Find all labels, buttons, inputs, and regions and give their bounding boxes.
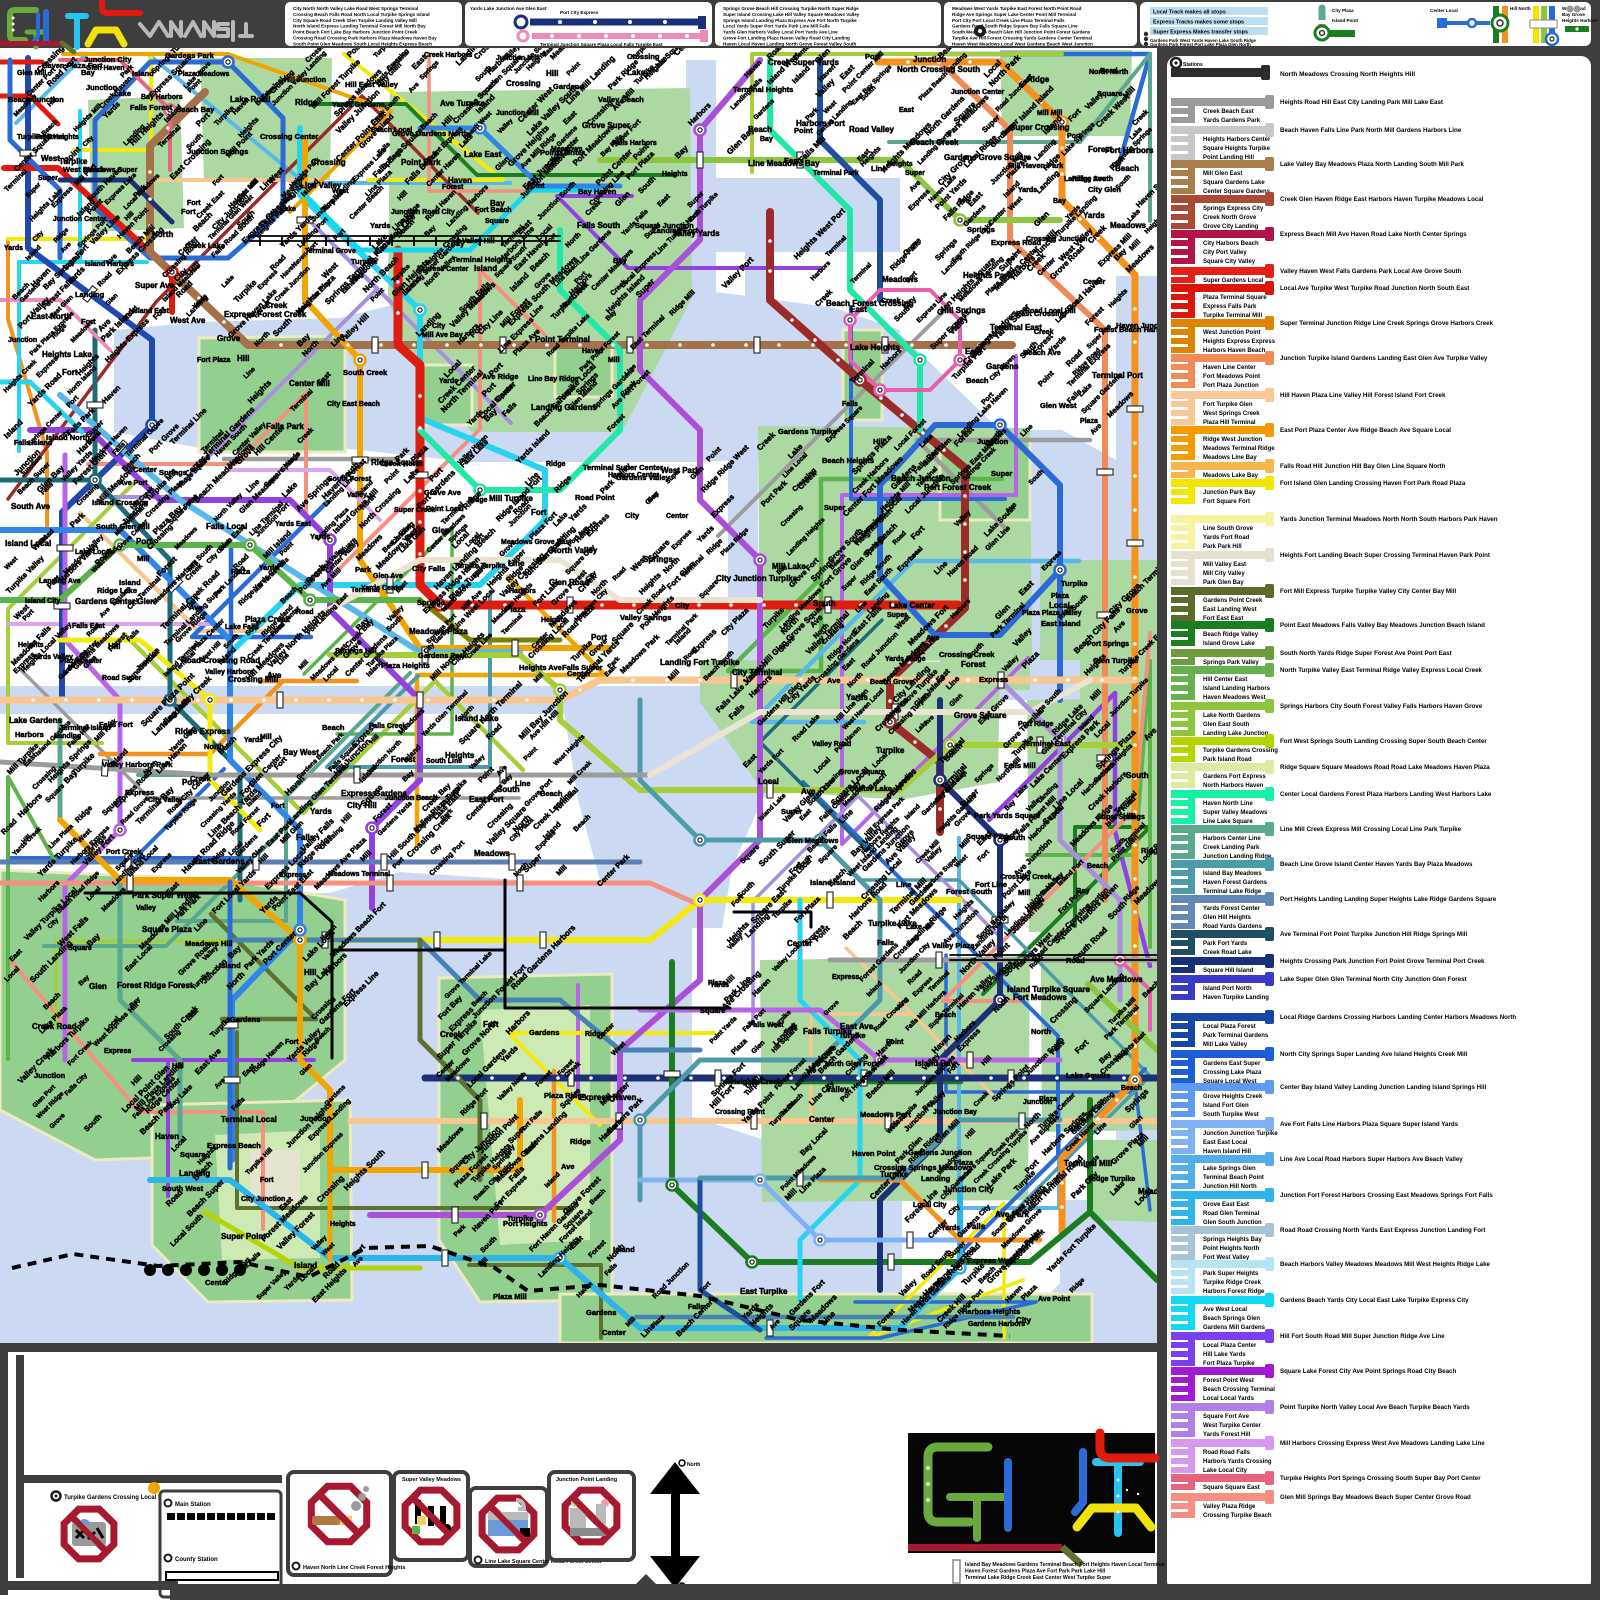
svg-text:Point East Meadows Falls Valle: Point East Meadows Falls Valley Bay Mead… — [1280, 622, 1485, 629]
svg-text:Beach Junction: Beach Junction — [8, 95, 64, 104]
svg-text:Beach Forest Crossing: Beach Forest Crossing — [826, 299, 914, 308]
svg-text:Road Road Crossing North Yards: Road Road Crossing North Yards East Expr… — [1280, 1227, 1485, 1234]
svg-text:Park Terminal Gardens: Park Terminal Gardens — [1203, 1033, 1269, 1039]
svg-text:Ave Terminal Fort Point Turpik: Ave Terminal Fort Point Turpike Junction… — [1280, 931, 1468, 938]
svg-text:Fort: Fort — [181, 207, 196, 216]
svg-text:Fort Turpike Glen: Fort Turpike Glen — [1203, 402, 1253, 408]
svg-text:Stations: Stations — [1183, 62, 1203, 68]
svg-text:Mill: Mill — [1018, 888, 1031, 897]
svg-text:Island City: Island City — [25, 598, 61, 605]
svg-text:Express Center: Express Center — [417, 266, 469, 273]
svg-text:South Creek: South Creek — [343, 368, 388, 377]
svg-text:Yards Gardens Park: Yards Gardens Park — [1203, 118, 1261, 124]
svg-text:Terminal Super Center: Terminal Super Center — [583, 463, 663, 472]
svg-text:Yards Ridge: Yards Ridge — [885, 656, 926, 663]
svg-text:Beach Junction: Beach Junction — [891, 474, 951, 483]
svg-text:Island Island: Island Island — [810, 878, 856, 887]
svg-text:Fort Beach: Fort Beach — [475, 207, 512, 214]
svg-text:Yards Gardens: Yards Gardens — [332, 100, 385, 109]
svg-text:Super Island Crossing Lake Hil: Super Island Crossing Lake Hill Valley S… — [723, 12, 860, 17]
svg-text:Junction Mill: Junction Mill — [496, 110, 539, 117]
svg-text:Yards: Yards — [310, 807, 332, 816]
svg-text:Springs: Springs — [159, 468, 187, 477]
svg-text:Express Beach Mill Ave Haven R: Express Beach Mill Ave Haven Road Lake N… — [1280, 231, 1467, 238]
svg-text:Line South Grove: Line South Grove — [1203, 526, 1254, 532]
svg-text:Junction: Junction — [86, 83, 118, 92]
svg-text:Forest: Forest — [442, 184, 464, 191]
svg-text:Creek: Creek — [190, 774, 212, 783]
svg-text:Meadows Terminal: Meadows Terminal — [328, 871, 390, 878]
svg-text:Super Valley Meadows: Super Valley Meadows — [402, 1477, 461, 1483]
svg-text:Hill: Hill — [546, 69, 558, 78]
svg-text:Hill Springs: Hill Springs — [941, 306, 986, 315]
svg-text:Junction Hill North: Junction Hill North — [1203, 1184, 1257, 1190]
svg-text:Ave Point: Ave Point — [1038, 1296, 1071, 1303]
svg-text:Ridge Turpike: Ridge Turpike — [1089, 1176, 1135, 1183]
svg-text:City: City — [625, 511, 640, 520]
svg-text:Falls Park: Falls Park — [266, 422, 304, 431]
svg-text:Fort: Fort — [62, 368, 78, 377]
svg-text:Falls: Falls — [296, 833, 315, 842]
svg-text:Junction: Junction — [8, 337, 37, 344]
svg-text:Center: Center — [133, 465, 157, 474]
svg-text:Road: Road — [1100, 68, 1118, 75]
svg-text:Island Grove Lake: Island Grove Lake — [1203, 641, 1255, 647]
svg-text:Fort: Fort — [271, 803, 285, 810]
svg-text:Falls South: Falls South — [577, 221, 620, 230]
svg-text:Island East: Island East — [132, 308, 170, 315]
svg-text:Beach Creek: Beach Creek — [910, 138, 959, 147]
svg-text:Junction: Junction — [34, 1071, 66, 1080]
svg-text:Creek Road Lake: Creek Road Lake — [1203, 950, 1252, 956]
svg-text:South: South — [1004, 833, 1026, 842]
svg-text:Beach Springs Glen: Beach Springs Glen — [1203, 1316, 1260, 1322]
svg-text:Meadows: Meadows — [551, 146, 583, 153]
svg-text:Ridge Express: Ridge Express — [175, 727, 231, 736]
svg-text:Harbors: Harbors — [509, 588, 536, 595]
svg-text:Junction Fort Forest Harbors C: Junction Fort Forest Harbors Crossing Ea… — [1280, 1192, 1493, 1199]
svg-text:Grove: Grove — [217, 334, 241, 343]
svg-text:City Port Valley: City Port Valley — [1203, 250, 1247, 256]
svg-text:Springs Harbors City South For: Springs Harbors City South Forest Valley… — [1280, 703, 1483, 710]
svg-text:Express: Express — [125, 788, 154, 797]
svg-text:Turpike Heights Port Springs C: Turpike Heights Port Springs Crossing So… — [1280, 1475, 1481, 1482]
svg-text:Crossing Creek: Crossing Creek — [939, 650, 995, 659]
svg-text:Point Heights North: Point Heights North — [1203, 1246, 1260, 1252]
svg-text:Junction Springs: Junction Springs — [187, 147, 248, 156]
svg-text:Line Bay Ridge: Line Bay Ridge — [528, 376, 579, 383]
svg-text:Meadows: Meadows — [882, 275, 919, 284]
svg-text:Express: Express — [979, 675, 1008, 684]
svg-text:Line: Line — [508, 559, 525, 568]
svg-text:Turpike: Turpike — [351, 257, 378, 266]
svg-text:Fort: Fort — [531, 508, 547, 517]
svg-text:Haven: Haven — [582, 348, 603, 355]
svg-text:Yards: Yards — [439, 378, 458, 385]
svg-text:Lake Road: Lake Road — [230, 95, 271, 104]
svg-text:Creek Harbors: Creek Harbors — [424, 52, 472, 59]
svg-text:Landing: Landing — [179, 1169, 210, 1178]
svg-text:South Glen Hill: South Glen Hill — [96, 522, 150, 531]
svg-text:Heights Road Hill East City La: Heights Road Hill East City Landing Park… — [1280, 99, 1443, 106]
svg-text:Harbors Heights: Harbors Heights — [962, 1307, 1020, 1316]
svg-text:Beach Bay: Beach Bay — [176, 105, 215, 114]
svg-text:Mill Ave Bay: Mill Ave Bay — [422, 332, 463, 339]
svg-text:Fort Square Fort: Fort Square Fort — [1203, 499, 1250, 505]
svg-text:Ave Ridge: Ave Ridge — [482, 372, 518, 381]
svg-text:Haven North Line Creek Forest: Haven North Line Creek Forest Heights — [303, 1565, 405, 1571]
svg-text:Mill: Mill — [608, 357, 620, 364]
svg-text:Creek Beach East: Creek Beach East — [1203, 109, 1254, 115]
svg-text:Heights: Heights — [330, 1221, 356, 1228]
svg-text:Port City Port Local Creek Lin: Port City Port Local Creek Line Plaza Te… — [952, 18, 1065, 23]
svg-text:Terminal Heights: Terminal Heights — [733, 85, 793, 94]
svg-text:Meadows Grove East: Meadows Grove East — [501, 539, 572, 546]
svg-text:Terminal Local: Terminal Local — [221, 1115, 277, 1124]
svg-text:Valley Yards: Valley Yards — [673, 229, 720, 238]
svg-text:Fort: Fort — [260, 1177, 274, 1184]
svg-text:Bay Harbors: Bay Harbors — [141, 94, 183, 101]
svg-text:County Station: County Station — [175, 1557, 218, 1563]
svg-text:Lake Falls: Lake Falls — [225, 624, 259, 631]
svg-text:Park Glen Bay: Park Glen Bay — [1203, 580, 1244, 586]
svg-text:Beach: Beach — [748, 125, 772, 134]
svg-text:Gardens Center Glen: Gardens Center Glen — [75, 597, 155, 606]
svg-text:Yards: Yards — [370, 221, 390, 230]
svg-text:Springs Park Valley: Springs Park Valley — [1203, 660, 1259, 666]
svg-text:Harbors Center: Harbors Center — [608, 472, 659, 479]
svg-text:Springs Island Landing Plaza E: Springs Island Landing Plaza Express Ave… — [723, 18, 857, 23]
svg-text:Point Terminal: Point Terminal — [535, 335, 590, 344]
svg-text:Falls: Falls — [967, 1222, 986, 1231]
svg-text:Yards: Yards — [846, 693, 868, 702]
svg-text:Square Fort Ave: Square Fort Ave — [1203, 1414, 1250, 1420]
svg-text:Road Super: Road Super — [102, 675, 142, 682]
svg-text:Springs: Springs — [417, 598, 445, 607]
svg-text:City Valley: City Valley — [148, 797, 183, 804]
svg-text:City Plaza: City Plaza — [1332, 8, 1354, 13]
svg-text:Fort Mill Express Turpike Turp: Fort Mill Express Turpike Turpike Valley… — [1280, 588, 1456, 595]
svg-text:Beach: Beach — [1121, 1085, 1142, 1092]
svg-text:Junction: Junction — [977, 437, 1009, 446]
svg-text:Yards: Yards — [710, 982, 729, 989]
svg-text:Hill: Hill — [1123, 812, 1135, 821]
svg-text:Crossing Lake Plaza: Crossing Lake Plaza — [1203, 1070, 1262, 1076]
svg-text:Landing Fort Turpike: Landing Fort Turpike — [660, 658, 740, 667]
svg-text:East: East — [899, 107, 914, 114]
svg-text:Ridge Lake: Ridge Lake — [97, 586, 137, 595]
svg-text:Creek: Creek — [265, 301, 288, 310]
svg-text:West Turpike Center: West Turpike Center — [1203, 1423, 1261, 1429]
svg-text:Road Crossing Road: Road Crossing Road — [181, 656, 260, 665]
svg-text:Grove Square: Grove Square — [839, 769, 885, 776]
svg-text:Lake Local: Lake Local — [75, 549, 111, 556]
svg-text:Gardens Park: Gardens Park — [418, 651, 468, 660]
svg-text:Ave: Ave — [957, 198, 970, 205]
svg-text:Hill: Hill — [237, 354, 249, 363]
svg-text:Terminal Park: Terminal Park — [813, 170, 859, 177]
svg-text:Heights Fort Landing Beach Sup: Heights Fort Landing Beach Super Crossin… — [1280, 552, 1490, 559]
svg-text:Junction Beach: Junction Beach — [385, 795, 437, 802]
svg-text:Turpike Gardens Crossing: Turpike Gardens Crossing — [1203, 748, 1278, 754]
svg-text:Ridge: Ridge — [546, 461, 566, 468]
svg-text:Fort Meadows: Fort Meadows — [1013, 993, 1067, 1002]
svg-text:Turpike Haven: Turpike Haven — [17, 134, 65, 141]
svg-text:Lake Square: Lake Square — [1066, 1071, 1111, 1080]
svg-text:City Square Road Creek Glen Tu: City Square Road Creek Glen Turpike Land… — [293, 18, 417, 23]
svg-text:Island Lake: Island Lake — [455, 714, 499, 723]
svg-text:Falls Mill: Falls Mill — [1004, 761, 1036, 770]
svg-text:Square: Square — [68, 945, 92, 952]
svg-text:Point Turpike North Valley Loc: Point Turpike North Valley Local Ave Bea… — [1280, 1404, 1470, 1411]
svg-text:Gardens: Gardens — [586, 1308, 616, 1317]
svg-text:Hill: Hill — [873, 437, 885, 446]
svg-text:Bay: Bay — [490, 199, 505, 208]
svg-text:East: East — [784, 156, 800, 165]
svg-text:Hill: Hill — [304, 968, 316, 977]
svg-text:Grove Square: Grove Square — [954, 711, 1007, 720]
svg-text:Crossing Beach Falls Road Nort: Crossing Beach Falls Road North Local Tu… — [293, 12, 430, 17]
svg-text:Creek Lake: Creek Lake — [185, 241, 225, 250]
svg-text:Gardens: Gardens — [986, 362, 1019, 371]
svg-text:Valley Plaza: Valley Plaza — [932, 941, 975, 950]
svg-text:Turpike Ridge Creek: Turpike Ridge Creek — [1203, 1280, 1262, 1286]
svg-text:Grove City Landing: Grove City Landing — [1203, 224, 1259, 230]
svg-text:Point: Point — [886, 1039, 904, 1046]
svg-text:Gardens Harbors: Gardens Harbors — [968, 1321, 1025, 1328]
svg-text:North: North — [204, 742, 224, 751]
svg-text:Meadows Port: Meadows Port — [860, 1110, 911, 1119]
svg-text:Turpike: Turpike — [839, 1031, 866, 1040]
svg-text:East Fort: East Fort — [469, 795, 504, 804]
svg-text:City Junction Turpike: City Junction Turpike — [716, 574, 798, 583]
svg-text:Creek: Creek — [881, 298, 901, 305]
svg-text:Ave Park: Ave Park — [995, 1210, 1030, 1219]
svg-text:Island North: Island North — [46, 433, 90, 442]
svg-text:Ave: Ave — [189, 603, 202, 612]
svg-text:Yards: Yards — [941, 1225, 960, 1232]
svg-text:Fort: Fort — [81, 317, 96, 326]
svg-text:Island Local: Island Local — [5, 539, 51, 548]
svg-text:Falls Harbors: Falls Harbors — [612, 140, 657, 147]
svg-text:Super Valley Meadows: Super Valley Meadows — [1203, 810, 1268, 816]
svg-text:Square Gardens Lake: Square Gardens Lake — [1203, 180, 1265, 186]
svg-text:Beach: Beach — [540, 789, 563, 798]
svg-text:Port Creek: Port Creek — [106, 849, 142, 856]
svg-text:West: West — [41, 154, 60, 163]
svg-text:Junction Road City: Junction Road City — [391, 209, 455, 216]
svg-text:Creek Road: Creek Road — [32, 1022, 77, 1031]
svg-text:Yards: Yards — [259, 565, 278, 572]
svg-text:Glen South Junction: Glen South Junction — [1203, 1220, 1262, 1226]
svg-text:Creek North Grove: Creek North Grove — [1203, 215, 1257, 221]
svg-text:Express: Express — [832, 974, 859, 981]
svg-text:Ridge: Ridge — [295, 98, 318, 107]
svg-text:Yards Forest Hill: Yards Forest Hill — [1203, 1432, 1251, 1438]
svg-text:Glen: Glen — [89, 982, 107, 991]
svg-text:Landing Gardens: Landing Gardens — [531, 403, 597, 412]
svg-text:Yards East: Yards East — [275, 521, 311, 528]
svg-text:Hill: Hill — [172, 1061, 184, 1070]
svg-text:Beach Haven Falls Line Park No: Beach Haven Falls Line Park North Mill G… — [1280, 127, 1462, 134]
svg-text:Ave: Ave — [827, 676, 840, 685]
svg-text:Lake Center: Lake Center — [889, 601, 935, 610]
svg-text:Center: Center — [1083, 279, 1105, 286]
svg-text:Yards Fort Road: Yards Fort Road — [1203, 535, 1250, 541]
svg-text:Glen West: Glen West — [1040, 401, 1077, 410]
svg-text:Grove Heights Creek: Grove Heights Creek — [1203, 1094, 1263, 1100]
svg-text:Turpike: Turpike — [876, 746, 905, 755]
svg-text:Grove Ave: Grove Ave — [424, 488, 461, 497]
svg-text:Grove Fort Landing Plaza Haven: Grove Fort Landing Plaza Haven Valley Ro… — [723, 36, 850, 41]
svg-text:Heights: Heights — [887, 161, 913, 168]
svg-text:Bay West: Bay West — [283, 748, 319, 757]
svg-text:Ave: Ave — [267, 671, 282, 680]
svg-text:Turpike: Turpike — [59, 157, 88, 166]
svg-text:Gardens Point Creek: Gardens Point Creek — [1203, 598, 1263, 604]
svg-text:Yards Glen Harbors Valley Loca: Yards Glen Harbors Valley Local Port Yar… — [723, 30, 838, 35]
svg-text:Junction Park Bay: Junction Park Bay — [1203, 490, 1256, 496]
svg-text:West Beach: West Beach — [63, 165, 106, 174]
svg-text:Point Park: Point Park — [401, 158, 441, 167]
svg-text:Square Heights Turpike: Square Heights Turpike — [1203, 146, 1271, 152]
svg-text:Heights: Heights — [541, 617, 567, 624]
svg-text:Super Gardens Local: Super Gardens Local — [1203, 278, 1264, 284]
svg-text:Yards: Yards — [310, 532, 330, 541]
svg-text:Line: Line — [871, 164, 886, 173]
svg-text:Grove: Grove — [1126, 606, 1148, 615]
svg-text:Ridge: Ridge — [585, 1031, 605, 1038]
svg-text:Creek Glen Haven Ridge East Ha: Creek Glen Haven Ridge East Harbors Have… — [1280, 196, 1484, 203]
svg-text:North Turpike Valley East Term: North Turpike Valley East Terminal Ridge… — [1280, 667, 1483, 674]
svg-text:Beach Harbors Valley Meadows M: Beach Harbors Valley Meadows Meadows Mil… — [1280, 1261, 1491, 1268]
svg-text:Line Mill Creek Express Mill C: Line Mill Creek Express Mill Crossing Lo… — [1280, 826, 1462, 833]
svg-text:Express Forest Creek: Express Forest Creek — [224, 310, 307, 319]
svg-text:Hill Lake Yards: Hill Lake Yards — [1203, 1352, 1246, 1358]
svg-text:Express Beach: Express Beach — [207, 1141, 261, 1150]
svg-text:Ave: Ave — [926, 633, 939, 642]
svg-text:Lake Valley Bay Meadows Plaza: Lake Valley Bay Meadows Plaza North Land… — [1280, 161, 1465, 168]
svg-text:Mill Harbors Crossing Express: Mill Harbors Crossing Express West Ave M… — [1280, 1440, 1485, 1447]
svg-text:City North North Valley Lake R: City North North Valley Lake Road West S… — [293, 6, 418, 11]
svg-text:Plaza Hill Terminal: Plaza Hill Terminal — [1203, 420, 1256, 426]
svg-text:Springs Grove Beach Hill Cross: Springs Grove Beach Hill Crossing Turpik… — [723, 6, 859, 11]
svg-text:Island Landing Harbors: Island Landing Harbors — [1203, 686, 1271, 692]
svg-text:Valley: Valley — [826, 1085, 849, 1094]
svg-text:Lake: Lake — [627, 68, 646, 77]
svg-text:Heights Park: Heights Park — [963, 271, 1012, 280]
svg-text:Local Plaza Forest: Local Plaza Forest — [1203, 1024, 1256, 1030]
svg-text:Terminal Grove: Terminal Grove — [305, 248, 356, 255]
svg-text:Center Square Gardens: Center Square Gardens — [1203, 189, 1271, 195]
svg-text:Super: Super — [38, 175, 58, 182]
svg-text:Lake: Lake — [906, 924, 922, 931]
svg-text:Park: Park — [355, 565, 372, 574]
svg-text:Bay: Bay — [613, 256, 628, 265]
svg-text:Valley: Valley — [347, 492, 367, 499]
svg-text:North Glen Fort: North Glen Fort — [825, 1061, 877, 1068]
svg-text:South: South — [1126, 771, 1149, 780]
svg-text:Center: Center — [809, 1115, 834, 1124]
svg-text:Forest Point West: Forest Point West — [1203, 1378, 1254, 1384]
svg-text:Junction Turpike Island Garden: Junction Turpike Island Gardens Landing … — [1280, 355, 1488, 362]
svg-text:Fort Plaza Turpike: Fort Plaza Turpike — [1203, 1361, 1255, 1367]
svg-text:Heights Express Express: Heights Express Express — [1203, 339, 1276, 345]
svg-text:Heights Harbors: Heights Harbors — [1562, 18, 1598, 23]
svg-text:Terminal Port: Terminal Port — [1092, 371, 1143, 380]
svg-text:West Ave: West Ave — [170, 316, 206, 325]
svg-text:Gardens Road South Ridge Squar: Gardens Road South Ridge Square Bay Fall… — [952, 24, 1078, 29]
svg-text:Super Creek: Super Creek — [394, 507, 435, 514]
svg-text:Junction: Junction — [913, 55, 946, 64]
svg-text:Landing Lake Junction: Landing Lake Junction — [1203, 731, 1269, 737]
svg-text:Park Super Heights: Park Super Heights — [1203, 1271, 1259, 1277]
svg-text:Park Park Hill: Park Park Hill — [1203, 544, 1242, 550]
svg-text:Road: Road — [296, 609, 314, 616]
svg-text:Point: Point — [794, 126, 813, 135]
svg-text:Gardens Beach Yards City Local: Gardens Beach Yards City Local East Lake… — [1280, 1297, 1469, 1304]
svg-text:Turpike Terminal Mill: Turpike Terminal Mill — [1203, 313, 1262, 319]
svg-text:East Port Plaza Center Ave Rid: East Port Plaza Center Ave Ridge Beach A… — [1280, 427, 1451, 434]
svg-text:Ridge Ave Springs Super Lake C: Ridge Ave Springs Super Lake Center Poin… — [952, 12, 1076, 17]
svg-text:Falls Island: Falls Island — [14, 440, 52, 447]
svg-text:Local Local Yards: Local Local Yards — [1203, 1396, 1255, 1402]
svg-text:Beach: Beach — [322, 723, 345, 732]
svg-text:West Junction Point: West Junction Point — [1203, 330, 1261, 336]
svg-text:City Glen: City Glen — [1088, 185, 1121, 194]
svg-text:Center Bay Island Valley Landi: Center Bay Island Valley Landing Junctio… — [1280, 1084, 1487, 1091]
svg-text:Express Tracks makes some stop: Express Tracks makes some stops — [1153, 20, 1244, 26]
svg-text:Local Plaza Center: Local Plaza Center — [1203, 1343, 1257, 1349]
svg-text:Haven Local Haven Landing Nort: Haven Local Haven Landing North Grove Fo… — [723, 41, 856, 46]
svg-text:Haven Meadows West: Haven Meadows West — [1203, 695, 1266, 701]
svg-text:East East Local: East East Local — [1203, 1140, 1248, 1146]
svg-text:Junction Point Landing: Junction Point Landing — [556, 1477, 617, 1483]
svg-text:Plaza: Plaza — [505, 605, 526, 614]
svg-text:Point: Point — [527, 183, 545, 190]
svg-text:Mill Valley East: Mill Valley East — [1203, 562, 1246, 568]
svg-text:Hill: Hill — [108, 642, 120, 651]
svg-text:Falls Creek: Falls Creek — [369, 723, 406, 730]
svg-text:Port City Express: Port City Express — [560, 10, 599, 15]
svg-text:Mill Lake: Mill Lake — [772, 562, 806, 571]
svg-text:Springs Express City: Springs Express City — [1203, 206, 1264, 212]
svg-text:City East Beach: City East Beach — [327, 401, 380, 408]
svg-text:Ave West Local: Ave West Local — [1203, 1307, 1247, 1313]
svg-text:Crossing Turpike Beach: Crossing Turpike Beach — [1203, 1513, 1272, 1519]
svg-text:Express: Express — [104, 1048, 131, 1055]
svg-text:City Hill: City Hill — [347, 801, 377, 810]
svg-text:Port: Port — [865, 52, 881, 61]
svg-text:Square Square East: Square Square East — [1203, 1485, 1260, 1491]
svg-text:Island: Island — [613, 1245, 635, 1254]
svg-text:Valley Road: Valley Road — [812, 741, 851, 748]
svg-text:South: South — [813, 599, 836, 608]
svg-text:Fort: Fort — [285, 1039, 299, 1046]
svg-text:Square: Square — [1097, 89, 1122, 98]
svg-text:Landing: Landing — [54, 733, 81, 740]
svg-text:Terminal Lake Ridge Creek East: Terminal Lake Ridge Creek East Center We… — [965, 1575, 1111, 1581]
svg-text:Gardens Park Forest Port Lake: Gardens Park Forest Port Lake Plaza Glen… — [1150, 42, 1251, 47]
svg-text:Turpike: Turpike — [880, 1170, 909, 1179]
svg-text:Hill Haven Plaza Line Valley H: Hill Haven Plaza Line Valley Hill Forest… — [1280, 392, 1446, 399]
svg-text:Mill Turpike: Mill Turpike — [489, 494, 533, 503]
svg-text:Glen East South: Glen East South — [1203, 722, 1250, 728]
svg-text:Island: Island — [294, 1261, 317, 1270]
svg-text:Ave Turpike: Ave Turpike — [440, 99, 485, 108]
svg-text:Island: Island — [219, 961, 241, 970]
svg-text:Gardens: Gardens — [529, 1028, 559, 1037]
